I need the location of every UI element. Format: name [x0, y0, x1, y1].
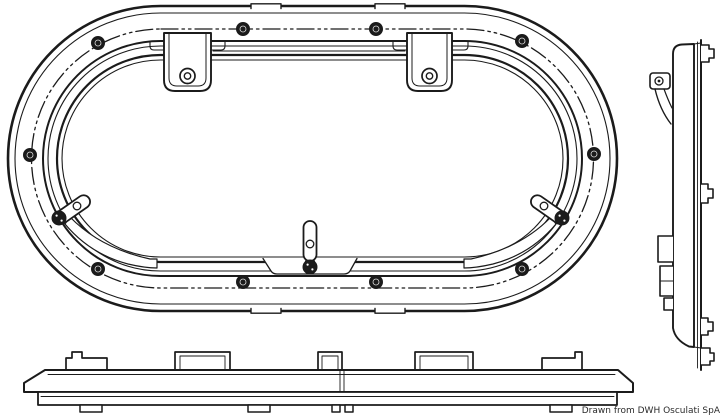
screw-hole — [370, 276, 383, 289]
front-view — [8, 4, 617, 313]
mounting-tab — [80, 405, 102, 412]
screw-hole — [370, 23, 383, 36]
side-view — [650, 40, 714, 370]
side-latch-steps — [658, 236, 673, 310]
latch-channel — [464, 217, 556, 268]
screw-hole — [24, 149, 37, 162]
technical-drawing-canvas — [0, 0, 722, 417]
screw-hole — [516, 263, 529, 276]
latch-bottom-center — [303, 221, 317, 274]
screw-hole — [92, 263, 105, 276]
latch-boss-right — [542, 352, 582, 370]
mounting-tab — [345, 405, 353, 412]
mounting-tab — [550, 405, 572, 412]
screw-hole — [92, 37, 105, 50]
bottom-lower-flange — [38, 392, 617, 405]
latch-lever — [304, 221, 317, 261]
side-frame-tabs — [694, 40, 714, 370]
latch-pivot-screw — [303, 260, 317, 274]
screw-hole — [516, 35, 529, 48]
drawing-credit-caption: Drawn from DWH Osculati SpA — [582, 406, 720, 416]
screw-hole — [237, 23, 250, 36]
mounting-tab — [332, 405, 340, 412]
mounting-tab — [248, 405, 270, 412]
bottom-main-bar — [24, 370, 633, 392]
latch-boss-left — [66, 352, 107, 370]
bottom-view — [24, 352, 633, 412]
side-hinge-bracket — [650, 73, 672, 124]
technical-drawing-page: Drawn from DWH Osculati SpA — [0, 0, 722, 417]
screw-hole — [237, 276, 250, 289]
latch-pivot-screw — [555, 211, 569, 225]
bottom-mounting-tabs — [80, 405, 572, 412]
latch-bottom-right — [464, 193, 569, 268]
screw-hole — [588, 148, 601, 161]
latch-pivot-screw — [52, 211, 66, 225]
side-pane-profile — [673, 44, 694, 347]
